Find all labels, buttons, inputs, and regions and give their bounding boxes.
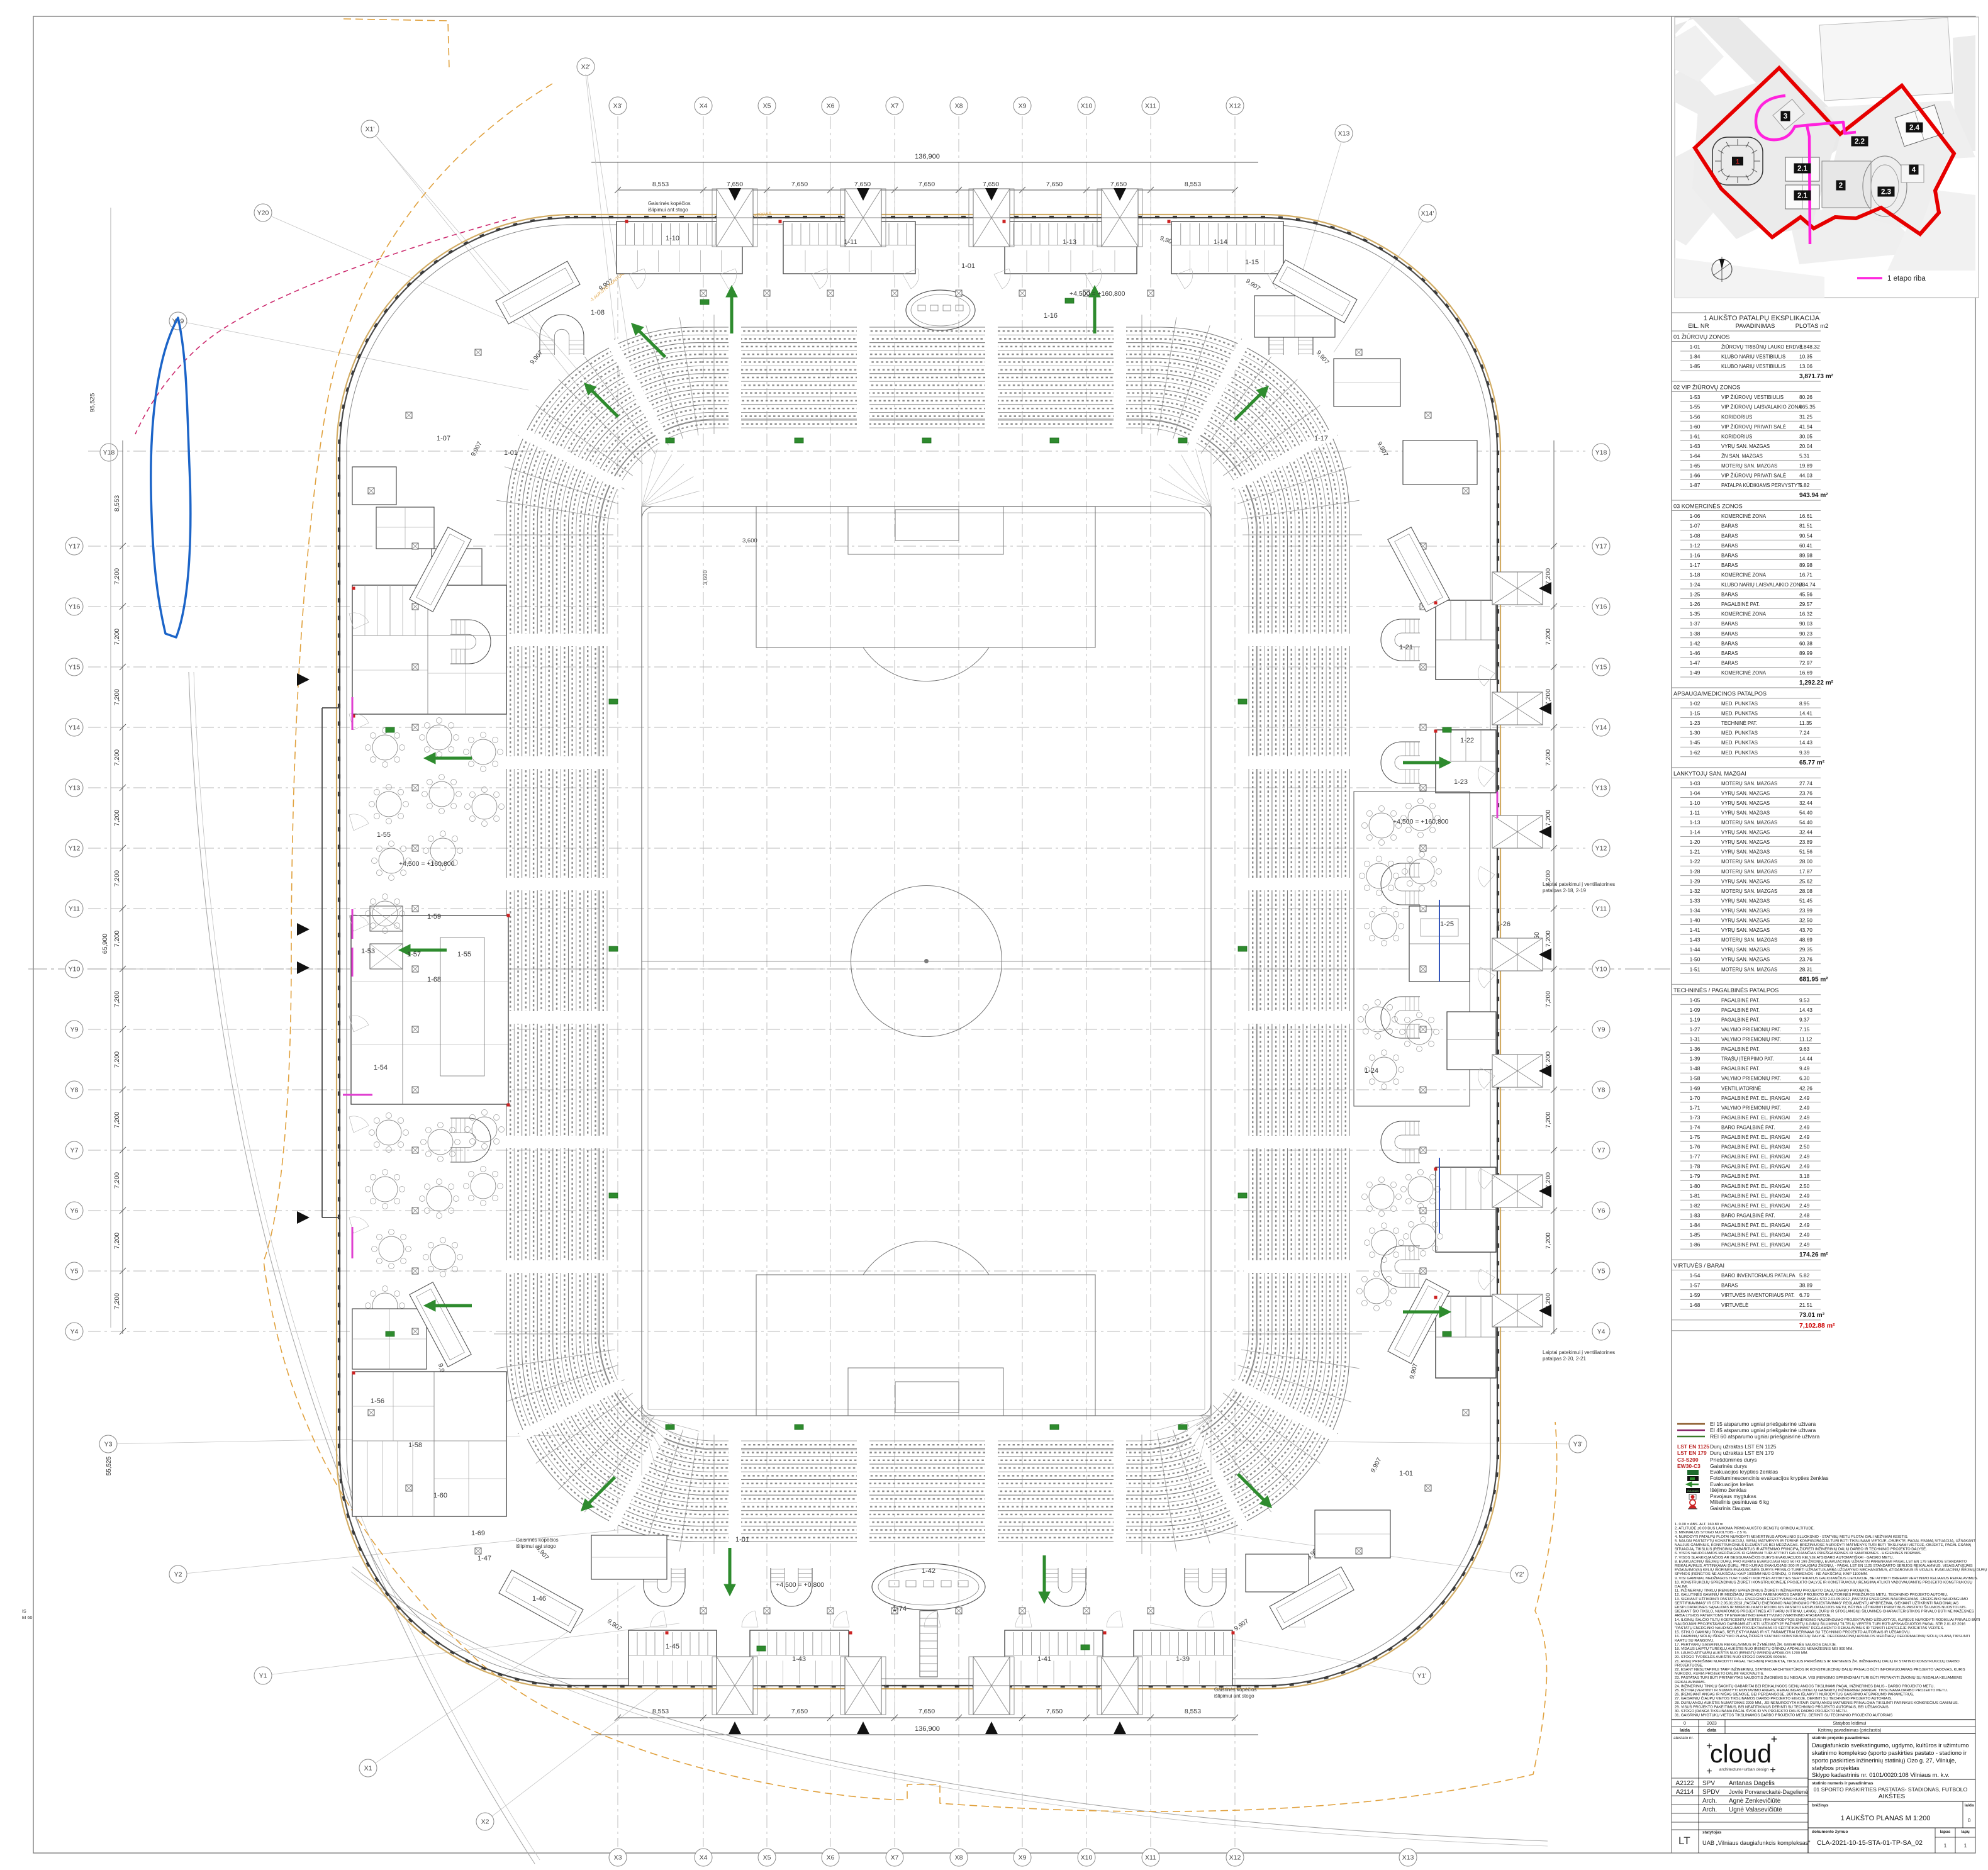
svg-text:Gaisrinis čiaupas: Gaisrinis čiaupas [1710, 1505, 1751, 1511]
svg-text:X8: X8 [955, 103, 963, 110]
svg-text:X12: X12 [1229, 103, 1241, 110]
svg-text:1-11: 1-11 [1690, 810, 1700, 816]
svg-text:PAGALBINĖ PAT.: PAGALBINĖ PAT. [1721, 602, 1760, 607]
svg-text:16. DARBINIŲ SIŪLIŲ IŠDĖSTYMO: 16. DARBINIŲ SIŪLIŲ IŠDĖSTYMO PLANĄ ŽIŪR… [1675, 1633, 1970, 1638]
svg-text:1-27: 1-27 [1690, 1026, 1700, 1033]
svg-text:1-41: 1-41 [1037, 1655, 1051, 1663]
svg-text:Ugnė Valasevičiūtė: Ugnė Valasevičiūtė [1729, 1806, 1782, 1813]
svg-text:Y12: Y12 [69, 845, 81, 853]
svg-text:Evakuacijos krypties ženklas: Evakuacijos krypties ženklas [1710, 1469, 1778, 1475]
svg-text:1-68: 1-68 [1690, 1302, 1700, 1308]
svg-text:SERTIFIKAVIMAS" IR STR 2.05.01: SERTIFIKAVIMAS" IR STR 2.05.01:2013 „PAS… [1675, 1600, 1958, 1605]
svg-text:lapų: lapų [1961, 1830, 1969, 1834]
svg-text:7,200: 7,200 [1544, 991, 1552, 1007]
svg-text:90.54: 90.54 [1799, 532, 1812, 539]
svg-text:1-55: 1-55 [1690, 404, 1700, 410]
svg-text:X1: X1 [364, 1765, 372, 1772]
svg-text:PAGALBINĖ PAT. EL. ĮRANGAI: PAGALBINĖ PAT. EL. ĮRANGAI [1721, 1145, 1790, 1150]
svg-text:cloud: cloud [1710, 1739, 1772, 1768]
svg-text:SIEKIANT ŠIO TIKSLO, NUMATOMOS: SIEKIANT ŠIO TIKSLO, NUMATOMOS PROJEKTIN… [1675, 1609, 1974, 1614]
svg-text:BARAS: BARAS [1721, 523, 1738, 529]
svg-text:8,553: 8,553 [1185, 181, 1201, 188]
svg-text:1-01: 1-01 [735, 1536, 749, 1543]
svg-text:32.44: 32.44 [1799, 800, 1812, 806]
svg-text:PAVADINIMAS: PAVADINIMAS [1736, 323, 1775, 330]
svg-text:BARAS: BARAS [1721, 651, 1738, 656]
svg-text:ŽIŪROVŲ TRIBŪNŲ LAUKO ERDVĖ: ŽIŪROVŲ TRIBŪNŲ LAUKO ERDVĖ [1721, 344, 1802, 350]
svg-text:SPYNOS ĮRENGTOS NE AUKŠČIAU KA: SPYNOS ĮRENGTOS NE AUKŠČIAU KAIP 1000MM … [1675, 1572, 1868, 1576]
svg-text:SITUACIJĄ, TIKSLIUS ĮRENGINIŲ: SITUACIJĄ, TIKSLIUS ĮRENGINIŲ GABARITUS … [1675, 1547, 1927, 1552]
svg-text:7,650: 7,650 [983, 181, 999, 188]
svg-text:1-16: 1-16 [1044, 312, 1058, 320]
svg-text:10. KONSTRUKCIJŲ SPRENDINIUS Ž: 10. KONSTRUKCIJŲ SPRENDINIUS ŽIŪRĖTI KON… [1675, 1579, 1972, 1584]
svg-text:Y2': Y2' [1515, 1571, 1524, 1579]
svg-text:REIKALAVIMAMS.: REIKALAVIMAMS. [1675, 1681, 1706, 1684]
svg-text:89.98: 89.98 [1799, 552, 1812, 558]
svg-text:PAGALBINĖ PAT.: PAGALBINĖ PAT. [1721, 1017, 1760, 1022]
svg-text:Y8: Y8 [70, 1087, 79, 1094]
svg-text:7,650: 7,650 [791, 181, 808, 188]
svg-text:Y10: Y10 [1595, 966, 1607, 973]
svg-text:1-47: 1-47 [1690, 659, 1700, 666]
svg-text:MOTERŲ SAN. MAZGAS: MOTERŲ SAN. MAZGAS [1721, 938, 1777, 943]
svg-text:681.95 m²: 681.95 m² [1799, 976, 1828, 983]
svg-text:EI 15 atsparumo ugniai priešga: EI 15 atsparumo ugniai priešgaisrinė užt… [1710, 1421, 1816, 1427]
svg-text:Fotoliuminescencinis evakuacij: Fotoliuminescencinis evakuacijos kryptie… [1710, 1475, 1829, 1481]
svg-text:43.70: 43.70 [1799, 927, 1812, 933]
svg-text:VYRŲ SAN. MAZGAS: VYRŲ SAN. MAZGAS [1721, 878, 1770, 884]
svg-text:išlipimui ant stogo: išlipimui ant stogo [1214, 1693, 1254, 1699]
svg-text:1-55: 1-55 [377, 831, 391, 839]
svg-text:VIRTUVĖS / BARAI: VIRTUVĖS / BARAI [1673, 1263, 1724, 1269]
svg-text:Laiptai patekimui į ventiliato: Laiptai patekimui į ventiliatorines [1543, 1350, 1615, 1355]
svg-text:12. GALUTINĖS GAMINIŲ IR MEDŽI: 12. GALUTINĖS GAMINIŲ IR MEDŽIAGŲ SPALVO… [1675, 1592, 1948, 1597]
svg-text:1-58: 1-58 [408, 1442, 422, 1449]
svg-text:BARAS: BARAS [1721, 543, 1738, 549]
svg-text:5.82: 5.82 [1799, 1272, 1810, 1279]
svg-text:7,200: 7,200 [113, 629, 121, 645]
svg-text:1-28: 1-28 [1690, 868, 1700, 875]
svg-text:VYRŲ SAN. MAZGAS: VYRŲ SAN. MAZGAS [1721, 444, 1770, 449]
svg-text:943.94 m²: 943.94 m² [1799, 492, 1828, 499]
svg-text:1: 1 [1964, 1843, 1967, 1849]
svg-text:X10: X10 [1081, 1854, 1093, 1862]
svg-text:48.69: 48.69 [1799, 937, 1812, 943]
svg-text:136,900: 136,900 [915, 1725, 940, 1733]
svg-text:2.49: 2.49 [1799, 1153, 1810, 1160]
svg-text:2023: 2023 [1707, 1722, 1717, 1726]
svg-text:EI 45 atsparumo ugniai priešga: EI 45 atsparumo ugniai priešgaisrinė užt… [1710, 1427, 1816, 1433]
svg-text:VYRŲ SAN. MAZGAS: VYRŲ SAN. MAZGAS [1721, 918, 1770, 924]
svg-text:1-82: 1-82 [1690, 1202, 1700, 1209]
svg-text:1-21: 1-21 [1399, 644, 1413, 651]
svg-text:1-83: 1-83 [1690, 1212, 1700, 1218]
svg-text:VIP ŽIŪROVŲ PRIVATI SALĖ: VIP ŽIŪROVŲ PRIVATI SALĖ [1721, 424, 1786, 430]
svg-text:1-22: 1-22 [1690, 858, 1700, 865]
svg-text:29.57: 29.57 [1799, 601, 1812, 607]
svg-text:8. EVAKUACINIŲ IŠĖJIMŲ DURŲ, P: 8. EVAKUACINIŲ IŠĖJIMŲ DURŲ, PRO KURIAS … [1675, 1559, 1967, 1564]
svg-text:1-07: 1-07 [1690, 523, 1700, 529]
svg-text:1-43: 1-43 [1690, 937, 1700, 943]
svg-text:1: 1 [1944, 1843, 1947, 1849]
svg-text:X3': X3' [613, 103, 623, 110]
svg-text:1-14: 1-14 [1690, 829, 1700, 836]
svg-text:14.43: 14.43 [1799, 1007, 1812, 1013]
svg-text:VYRŲ SAN. MAZGAS: VYRŲ SAN. MAZGAS [1721, 908, 1770, 914]
svg-text:+4,500 = +0,800: +4,500 = +0,800 [776, 1581, 824, 1589]
svg-text:1-18: 1-18 [1690, 572, 1700, 578]
svg-text:2.49: 2.49 [1799, 1192, 1810, 1199]
svg-text:60.41: 60.41 [1799, 542, 1812, 549]
svg-text:2.48: 2.48 [1799, 1212, 1810, 1218]
svg-text:X13: X13 [1338, 130, 1350, 138]
svg-text:KLUBO NARIŲ VESTIBIULIS: KLUBO NARIŲ VESTIBIULIS [1721, 354, 1785, 360]
svg-text:1-47: 1-47 [477, 1555, 491, 1562]
svg-text:1-57: 1-57 [1690, 1282, 1700, 1289]
svg-text:Y17: Y17 [1595, 543, 1607, 551]
svg-text:KOMERCINĖ ZONA: KOMERCINĖ ZONA [1721, 670, 1767, 676]
svg-text:VIRTUVĖS INVENTORIAUS PAT.: VIRTUVĖS INVENTORIAUS PAT. [1721, 1292, 1795, 1298]
svg-text:1-38: 1-38 [1690, 630, 1700, 637]
svg-text:UAB „Vilniaus daugiafunkcis ko: UAB „Vilniaus daugiafunkcis kompleksas" [1702, 1840, 1811, 1846]
svg-text:23.76: 23.76 [1799, 956, 1812, 963]
svg-text:PAGALBINĖ PAT. EL. ĮRANGAI: PAGALBINĖ PAT. EL. ĮRANGAI [1721, 1134, 1790, 1140]
svg-text:1-84: 1-84 [1690, 354, 1700, 360]
svg-text:TRĄŠŲ ĮTERPIMO PAT.: TRĄŠŲ ĮTERPIMO PAT. [1721, 1056, 1774, 1062]
svg-text:174.26 m²: 174.26 m² [1799, 1251, 1828, 1258]
svg-text:1 etapo riba: 1 etapo riba [1887, 275, 1926, 283]
svg-text:X9: X9 [1019, 1854, 1027, 1862]
svg-text:23. PASTATAS TURI BŪTI PRITAIK: 23. PASTATAS TURI BŪTI PRITAIKYTAS NAUDO… [1675, 1675, 1962, 1680]
svg-text:90.23: 90.23 [1799, 630, 1812, 637]
svg-text:+: + [1770, 1765, 1775, 1776]
svg-text:Y8: Y8 [1597, 1087, 1605, 1094]
svg-text:2.4: 2.4 [1909, 125, 1920, 132]
svg-text:1-05: 1-05 [1690, 997, 1700, 1003]
svg-text:89.99: 89.99 [1799, 650, 1812, 656]
svg-text:BARAS: BARAS [1721, 631, 1738, 637]
svg-text:KARTU SU RANGOVU.: KARTU SU RANGOVU. [1675, 1639, 1714, 1643]
svg-text:1-79: 1-79 [1690, 1173, 1700, 1179]
svg-text:PAGALBINĖ PAT.: PAGALBINĖ PAT. [1721, 997, 1760, 1003]
svg-text:1-64: 1-64 [1690, 453, 1700, 459]
svg-text:3,848.32: 3,848.32 [1799, 344, 1820, 350]
svg-text:1-59: 1-59 [1690, 1292, 1700, 1298]
svg-text:Y4: Y4 [70, 1328, 79, 1336]
svg-text:1-37: 1-37 [1690, 620, 1700, 627]
svg-text:4. NURODYTI PATALPŲ PLOTAI NUR: 4. NURODYTI PATALPŲ PLOTAI NURODYTI NEVE… [1675, 1534, 1909, 1539]
svg-text:statytojas: statytojas [1702, 1830, 1722, 1835]
svg-text:1-69: 1-69 [471, 1530, 485, 1537]
svg-text:1-17: 1-17 [1690, 562, 1700, 568]
svg-text:1-87: 1-87 [1690, 482, 1700, 488]
svg-text:PAGALBINĖ PAT. EL. ĮRANGAI: PAGALBINĖ PAT. EL. ĮRANGAI [1721, 1203, 1790, 1209]
svg-text:665.35: 665.35 [1799, 404, 1816, 410]
svg-text:32.50: 32.50 [1799, 917, 1812, 924]
svg-text:IŠĖJIMAS: IŠĖJIMAS [1687, 1489, 1699, 1492]
svg-text:3.18: 3.18 [1799, 1173, 1810, 1179]
svg-text:2.50: 2.50 [1799, 1183, 1810, 1189]
svg-text:2.50: 2.50 [1799, 1144, 1810, 1150]
svg-text:1-70: 1-70 [1690, 1095, 1700, 1101]
svg-text:Y18: Y18 [1595, 449, 1607, 457]
svg-text:30. STOGO ĮRANGA TIKSLINAMA PA: 30. STOGO ĮRANGA TIKSLINAMA PAGAL ŠVOK I… [1675, 1709, 1848, 1713]
svg-text:1-50: 1-50 [1690, 956, 1700, 963]
svg-text:KOMERCINĖ ZONA: KOMERCINĖ ZONA [1721, 513, 1767, 519]
svg-text:1-17: 1-17 [1314, 435, 1328, 442]
svg-text:51.45: 51.45 [1799, 897, 1812, 904]
svg-text:1-46: 1-46 [1690, 650, 1700, 656]
svg-text:EIL. NR: EIL. NR [1688, 323, 1709, 330]
svg-text:7,200: 7,200 [113, 1051, 121, 1068]
svg-text:EI 60: EI 60 [22, 1616, 32, 1620]
svg-text:11.12: 11.12 [1799, 1036, 1812, 1043]
svg-text:Y6: Y6 [1597, 1207, 1605, 1215]
svg-text:MOTERŲ SAN. MAZGAS: MOTERŲ SAN. MAZGAS [1721, 820, 1777, 826]
svg-text:7,200: 7,200 [113, 568, 121, 585]
svg-text:EKSPLOATACINES SĄNAUDAS IR MIK: EKSPLOATACINES SĄNAUDAS IR MIKROKLIMATO … [1675, 1604, 1967, 1610]
svg-text:+4,500 = +160,800: +4,500 = +160,800 [1393, 818, 1449, 826]
svg-text:Statybos leidimui: Statybos leidimui [1833, 1722, 1867, 1726]
svg-text:MED. PUNKTAS: MED. PUNKTAS [1721, 750, 1758, 756]
svg-text:30.05: 30.05 [1799, 433, 1812, 439]
svg-text:X11: X11 [1145, 1854, 1156, 1862]
svg-text:2.1: 2.1 [1797, 193, 1808, 200]
svg-text:Y6: Y6 [70, 1207, 79, 1215]
svg-text:Y13: Y13 [1595, 785, 1607, 792]
svg-text:VYRŲ SAN. MAZGAS: VYRŲ SAN. MAZGAS [1721, 947, 1770, 953]
svg-text:3,871.73 m²: 3,871.73 m² [1799, 373, 1834, 380]
svg-text:1-13: 1-13 [1690, 819, 1700, 826]
svg-text:BARAS: BARAS [1721, 1283, 1738, 1289]
svg-text:1-35: 1-35 [1690, 611, 1700, 617]
svg-text:01 ŽIŪROVŲ ZONOS: 01 ŽIŪROVŲ ZONOS [1673, 334, 1729, 340]
svg-text:1-20: 1-20 [1690, 839, 1700, 845]
svg-text:1-68: 1-68 [427, 976, 441, 983]
svg-text:2.3: 2.3 [1881, 189, 1891, 196]
svg-text:1-54: 1-54 [374, 1064, 388, 1072]
svg-text:C3-S200: C3-S200 [1677, 1457, 1699, 1463]
svg-text:X8: X8 [955, 1854, 963, 1862]
svg-text:+: + [1706, 1766, 1712, 1777]
svg-text:1-78: 1-78 [1690, 1163, 1700, 1170]
svg-text:1-25: 1-25 [1440, 921, 1454, 928]
svg-text:9. VISI GAMINIAI, MEDŽIAGOS TU: 9. VISI GAMINIAI, MEDŽIAGOS TURI TURĖTI … [1675, 1576, 1979, 1581]
svg-text:1-40: 1-40 [1690, 917, 1700, 924]
svg-text:IS: IS [22, 1610, 26, 1614]
svg-text:brėžinys: brėžinys [1812, 1803, 1829, 1808]
svg-text:MOTERŲ SAN. MAZGAS: MOTERŲ SAN. MAZGAS [1721, 859, 1777, 865]
svg-text:65.77 m²: 65.77 m² [1799, 759, 1825, 766]
svg-text:27. GAISRINIŲ ČIAUPŲ VIETOS TI: 27. GAISRINIŲ ČIAUPŲ VIETOS TIKSLINAMOS … [1675, 1696, 1892, 1701]
svg-text:X6: X6 [827, 1854, 835, 1862]
svg-text:A2122: A2122 [1676, 1780, 1694, 1787]
svg-text:Gaisrinės kopėčios: Gaisrinės kopėčios [648, 201, 691, 206]
svg-text:1,292.22 m²: 1,292.22 m² [1799, 680, 1834, 686]
svg-text:1-22: 1-22 [1460, 737, 1474, 744]
svg-text:16.69: 16.69 [1799, 669, 1812, 676]
svg-text:išlipimui ant stogo: išlipimui ant stogo [648, 207, 688, 213]
svg-text:TECHNINĖS / PAGALBINĖS PATALPO: TECHNINĖS / PAGALBINĖS PATALPOS [1673, 987, 1779, 994]
svg-text:8,553: 8,553 [1185, 1708, 1201, 1715]
svg-text:1-26: 1-26 [1497, 921, 1511, 928]
svg-text:1-24: 1-24 [1690, 581, 1700, 588]
svg-text:25. BŪTINA ĮVERTINTI IR NUMATY: 25. BŪTINA ĮVERTINTI IR NUMATYTI MONTAVI… [1675, 1688, 1948, 1693]
svg-text:Y18: Y18 [103, 449, 115, 457]
svg-text:Durų užraktas LST EN 179: Durų užraktas LST EN 179 [1710, 1450, 1774, 1456]
svg-text:X10: X10 [1081, 103, 1093, 110]
svg-text:X7: X7 [891, 103, 899, 110]
svg-text:1-74: 1-74 [1690, 1124, 1700, 1131]
svg-text:X13: X13 [1402, 1854, 1414, 1862]
svg-text:16.61: 16.61 [1799, 513, 1812, 519]
svg-text:60.38: 60.38 [1799, 640, 1812, 646]
svg-text:X6: X6 [827, 103, 835, 110]
svg-text:PAGALBINĖ PAT. EL. ĮRANGAI: PAGALBINĖ PAT. EL. ĮRANGAI [1721, 1223, 1790, 1228]
svg-text:MED. PUNKTAS: MED. PUNKTAS [1721, 711, 1758, 717]
svg-text:16.32: 16.32 [1799, 611, 1812, 617]
svg-text:Y5: Y5 [1597, 1268, 1605, 1275]
svg-text:1-54: 1-54 [1690, 1272, 1700, 1279]
svg-text:VIP ŽIŪROVŲ VESTIBIULIS: VIP ŽIŪROVŲ VESTIBIULIS [1721, 395, 1784, 400]
svg-text:PAGALBINĖ PAT.: PAGALBINĖ PAT. [1721, 1007, 1760, 1013]
svg-text:Y7: Y7 [1597, 1147, 1605, 1155]
svg-text:VYRŲ SAN. MAZGAS: VYRŲ SAN. MAZGAS [1721, 849, 1770, 855]
svg-text:A2114: A2114 [1676, 1789, 1694, 1796]
svg-text:8.95: 8.95 [1799, 700, 1810, 707]
svg-text:1-16: 1-16 [1690, 552, 1700, 558]
svg-text:1-55: 1-55 [457, 951, 471, 958]
svg-text:MOTERŲ SAN. MAZGAS: MOTERŲ SAN. MAZGAS [1721, 966, 1777, 972]
svg-text:Durų užraktas LST EN 1125: Durų užraktas LST EN 1125 [1710, 1443, 1777, 1450]
svg-text:9.49: 9.49 [1799, 1065, 1810, 1072]
svg-text:Arch.: Arch. [1702, 1798, 1717, 1805]
svg-text:+: + [1771, 1733, 1778, 1745]
svg-text:1-11: 1-11 [844, 238, 857, 246]
svg-text:Y17: Y17 [69, 543, 81, 551]
svg-text:Y16: Y16 [1595, 603, 1607, 611]
svg-text:8,553: 8,553 [113, 495, 121, 512]
svg-text:14. ILGINIŲ ŠALČIO TILTŲ KOEFI: 14. ILGINIŲ ŠALČIO TILTŲ KOEFICIENTŲ VER… [1675, 1617, 1980, 1622]
svg-text:1-51: 1-51 [1690, 966, 1700, 972]
svg-text:38.89: 38.89 [1799, 1282, 1812, 1289]
svg-text:2.49: 2.49 [1799, 1095, 1810, 1101]
svg-text:1-39: 1-39 [1690, 1056, 1700, 1062]
svg-text:5. NAUJAI PASTATYTŲ KONSTRUKCI: 5. NAUJAI PASTATYTŲ KONSTRUKCIJŲ, SIENŲ … [1675, 1538, 1975, 1543]
svg-text:AIKŠTĖS: AIKŠTĖS [1879, 1792, 1906, 1800]
svg-text:2.49: 2.49 [1799, 1232, 1810, 1238]
svg-text:6. VISOS NAUDOJAMOS MEDŽIAGOS: 6. VISOS NAUDOJAMOS MEDŽIAGOS IR GAMINIA… [1675, 1550, 1922, 1555]
svg-text:7,200: 7,200 [1544, 1112, 1552, 1128]
svg-text:DALIMI.: DALIMI. [1675, 1585, 1689, 1589]
svg-text:laida: laida [1965, 1803, 1974, 1808]
svg-text:1-63: 1-63 [1690, 443, 1700, 449]
svg-text:20.04: 20.04 [1799, 443, 1812, 449]
svg-text:7,200: 7,200 [1544, 568, 1552, 585]
svg-text:1-01: 1-01 [961, 262, 975, 270]
svg-text:1-01: 1-01 [504, 449, 518, 457]
svg-text:"PASTATŲ ENERGINIO NAUDINGUMO: "PASTATŲ ENERGINIO NAUDINGUMO PROJEKTAVI… [1675, 1626, 1945, 1630]
svg-text:23.76: 23.76 [1799, 790, 1812, 796]
svg-text:Y11: Y11 [1595, 905, 1607, 913]
svg-text:PLOTAS m2: PLOTAS m2 [1795, 323, 1829, 330]
svg-text:TECHNINĖ PAT.: TECHNINĖ PAT. [1721, 720, 1757, 726]
svg-text:2.49: 2.49 [1799, 1202, 1810, 1209]
svg-text:1-59: 1-59 [427, 913, 441, 921]
svg-text:PAGALBINĖ PAT.: PAGALBINĖ PAT. [1721, 1046, 1760, 1052]
svg-text:7,102.88 m²: 7,102.88 m² [1799, 1322, 1835, 1330]
svg-text:1-31: 1-31 [1690, 1036, 1700, 1043]
svg-text:1-15: 1-15 [1690, 710, 1700, 717]
svg-text:VIRTUVĖLĖ: VIRTUVĖLĖ [1721, 1302, 1748, 1308]
svg-text:136,900: 136,900 [915, 153, 940, 160]
svg-text:ŽN SAN. MAZGAS: ŽN SAN. MAZGAS [1721, 454, 1763, 459]
svg-text:11. INŽINERINIŲ TINKLŲ ĮRENGIM: 11. INŽINERINIŲ TINKLŲ ĮRENGIMO SPRENDIN… [1675, 1588, 1871, 1593]
svg-text:8,553: 8,553 [652, 181, 669, 188]
svg-text:7,650: 7,650 [919, 1708, 935, 1715]
svg-text:28.31: 28.31 [1799, 966, 1812, 972]
svg-text:1-43: 1-43 [792, 1655, 806, 1663]
svg-text:7,650: 7,650 [1110, 181, 1127, 188]
svg-text:1-23: 1-23 [1454, 778, 1468, 786]
svg-text:1-01: 1-01 [1399, 1470, 1413, 1477]
svg-text:PAGALBINĖ PAT.: PAGALBINĖ PAT. [1721, 1173, 1760, 1179]
svg-text:7,650: 7,650 [1046, 181, 1063, 188]
svg-text:BARAS: BARAS [1721, 563, 1738, 568]
svg-text:skatinimo komplekso (sporto pa: skatinimo komplekso (sporto paskirties p… [1812, 1749, 1967, 1756]
svg-text:10.35: 10.35 [1799, 354, 1812, 360]
svg-text:MOTERŲ SAN. MAZGAS: MOTERŲ SAN. MAZGAS [1721, 888, 1777, 894]
svg-text:SPV: SPV [1702, 1780, 1715, 1787]
svg-text:29. VISUS PROJEKTO PAKEITIMUS,: 29. VISUS PROJEKTO PAKEITIMUS, BEI NEATI… [1675, 1704, 1890, 1709]
svg-text:7,200: 7,200 [113, 689, 121, 705]
svg-text:Y9: Y9 [70, 1026, 79, 1034]
svg-text:+4,500 = +160,800: +4,500 = +160,800 [1069, 290, 1125, 298]
svg-text:Y16: Y16 [69, 603, 81, 611]
svg-text:X1': X1' [366, 126, 375, 133]
svg-text:72.97: 72.97 [1799, 659, 1812, 666]
svg-text:Y1': Y1' [1417, 1672, 1427, 1680]
svg-text:MED. PUNKTAS: MED. PUNKTAS [1721, 731, 1758, 736]
svg-text:Keitimų pavadinimas (priežasti: Keitimų pavadinimas (priežastis) [1818, 1728, 1882, 1733]
svg-text:X3: X3 [614, 1854, 622, 1862]
svg-text:VALYMO PRIEMONIŲ PAT.: VALYMO PRIEMONIŲ PAT. [1721, 1076, 1781, 1082]
svg-text:90.03: 90.03 [1799, 620, 1812, 627]
svg-text:statybos projektas: statybos projektas [1812, 1764, 1860, 1771]
svg-text:1-07: 1-07 [437, 435, 450, 442]
svg-text:1-06: 1-06 [1690, 513, 1700, 519]
svg-text:2: 2 [1839, 182, 1843, 190]
svg-text:MOTERŲ SAN. MAZGAS: MOTERŲ SAN. MAZGAS [1721, 781, 1777, 787]
svg-text:1-73: 1-73 [1690, 1114, 1700, 1121]
svg-text:1-46: 1-46 [532, 1595, 546, 1603]
svg-text:1-13: 1-13 [1063, 238, 1076, 246]
svg-text:18. VIDAUS LAIPTŲ TURĖKLŲ AUKŠ: 18. VIDAUS LAIPTŲ TURĖKLŲ AUKŠTIS NUO ĮR… [1675, 1646, 1853, 1651]
svg-text:29.35: 29.35 [1799, 946, 1812, 953]
svg-text:MED. PUNKTAS: MED. PUNKTAS [1721, 740, 1758, 746]
svg-text:51.56: 51.56 [1799, 849, 1812, 855]
svg-text:1-30: 1-30 [1690, 730, 1700, 736]
svg-text:KORIDORIUS: KORIDORIUS [1721, 434, 1752, 439]
svg-text:7,200: 7,200 [113, 1112, 121, 1128]
svg-text:19. LAUKO ATITVARŲ AUKŠTIS NUO: 19. LAUKO ATITVARŲ AUKŠTIS NUO ĮRENGTŲ G… [1675, 1651, 1809, 1655]
svg-text:NURODO, KURIA PROJEKTO DALIMI: NURODO, KURIA PROJEKTO DALIMI VADOVAUTIS… [1675, 1672, 1764, 1676]
svg-text:7,200: 7,200 [1544, 629, 1552, 645]
svg-text:9.39: 9.39 [1799, 749, 1810, 756]
svg-text:6.79: 6.79 [1799, 1292, 1810, 1298]
svg-text:1-75: 1-75 [1690, 1134, 1700, 1140]
svg-text:27.74: 27.74 [1799, 780, 1812, 787]
